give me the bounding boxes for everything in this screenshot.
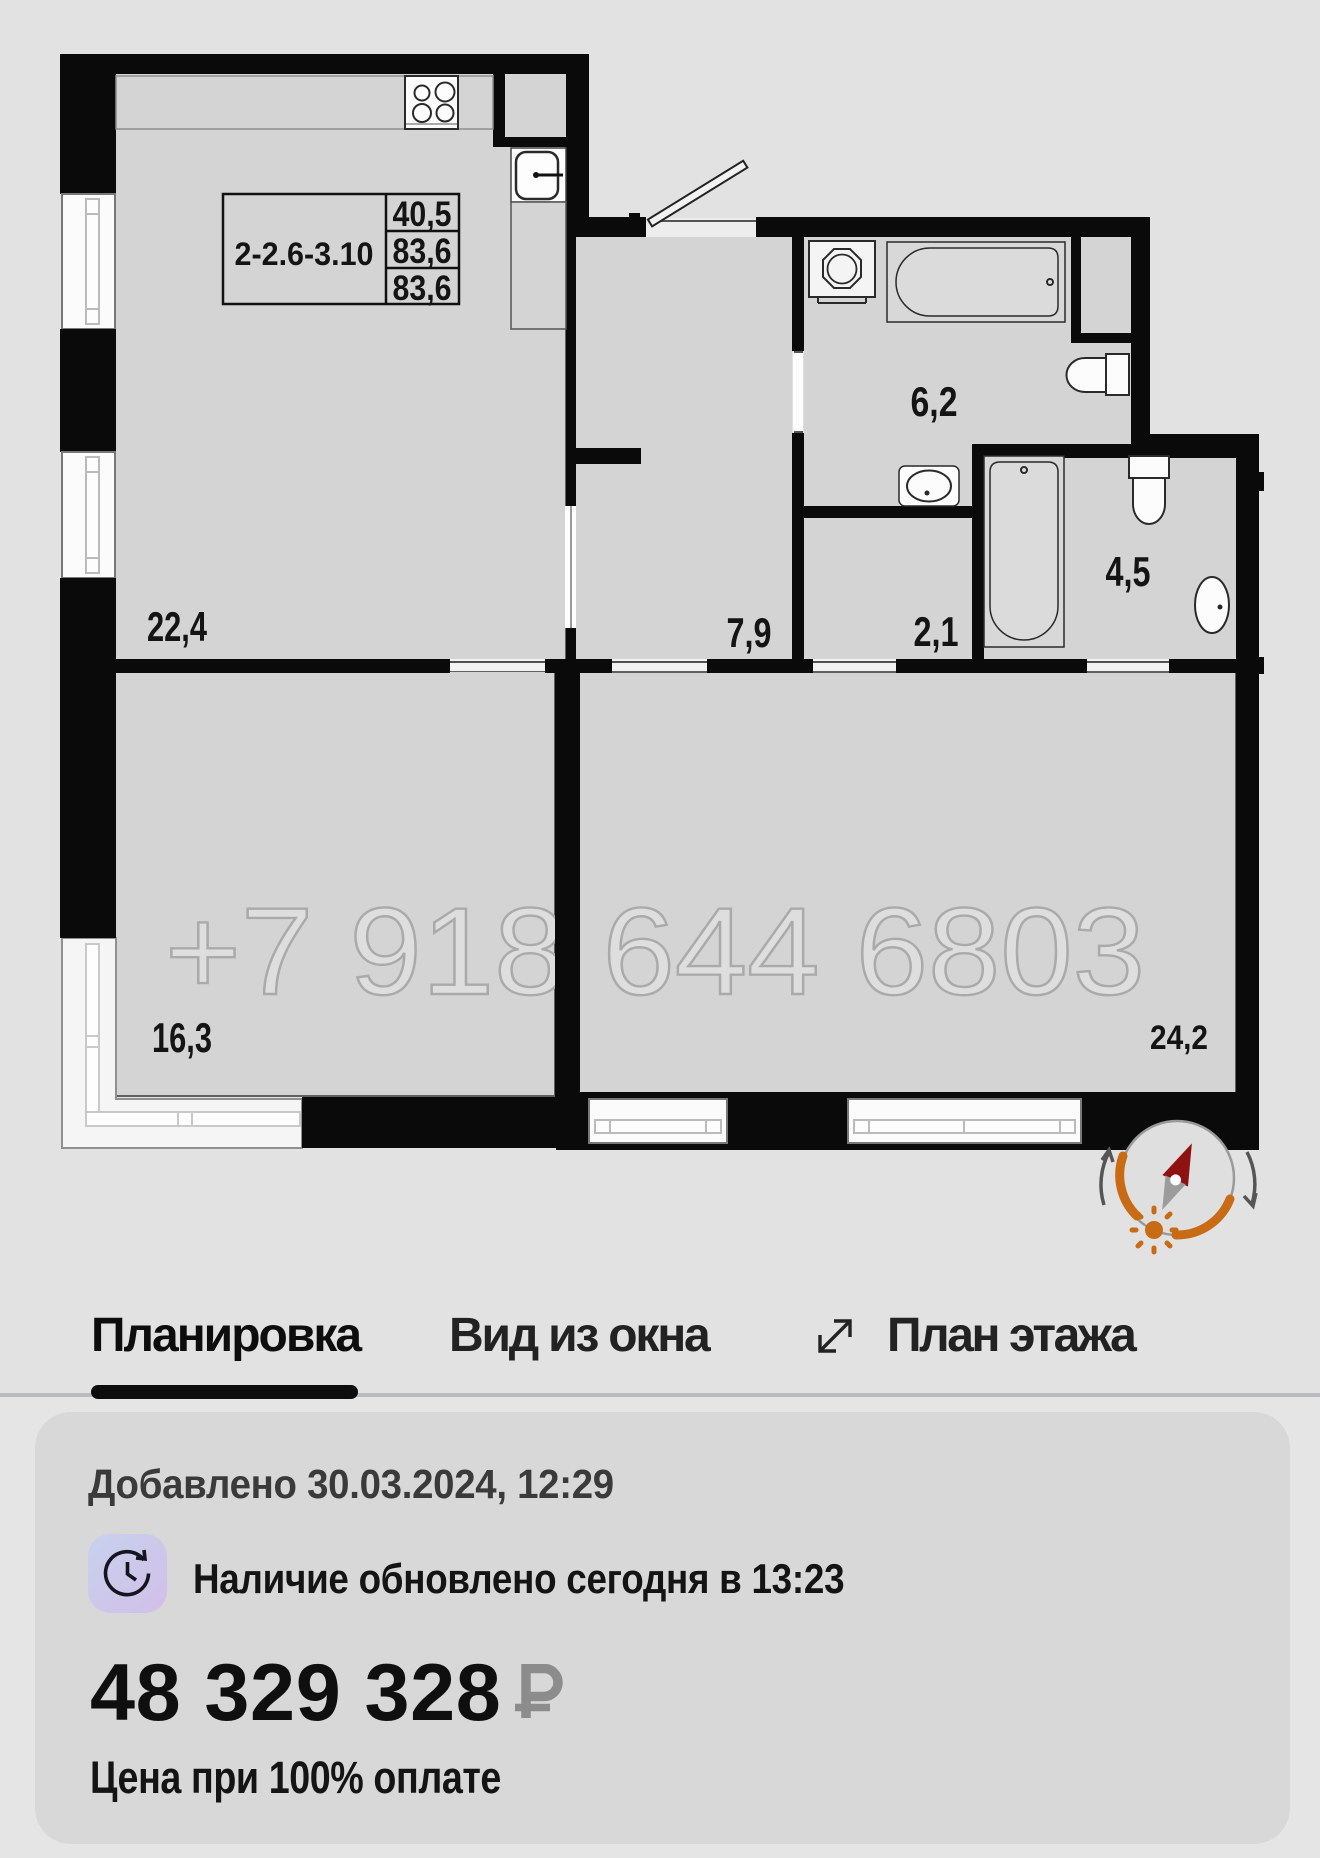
svg-text:40,5: 40,5: [393, 195, 452, 234]
svg-text:83,6: 83,6: [393, 269, 452, 308]
svg-text:7,9: 7,9: [727, 609, 772, 656]
svg-text:6,2: 6,2: [911, 378, 958, 425]
svg-text:22,4: 22,4: [147, 603, 207, 650]
svg-text:+7 918 644 6803: +7 918 644 6803: [165, 883, 1145, 1021]
svg-text:24,2: 24,2: [1150, 1019, 1208, 1057]
svg-text:2-2.6-3.10: 2-2.6-3.10: [235, 236, 374, 272]
svg-text:2,1: 2,1: [914, 608, 959, 655]
svg-text:16,3: 16,3: [152, 1014, 212, 1061]
svg-text:83,6: 83,6: [393, 232, 452, 271]
svg-text:4,5: 4,5: [1106, 548, 1151, 595]
